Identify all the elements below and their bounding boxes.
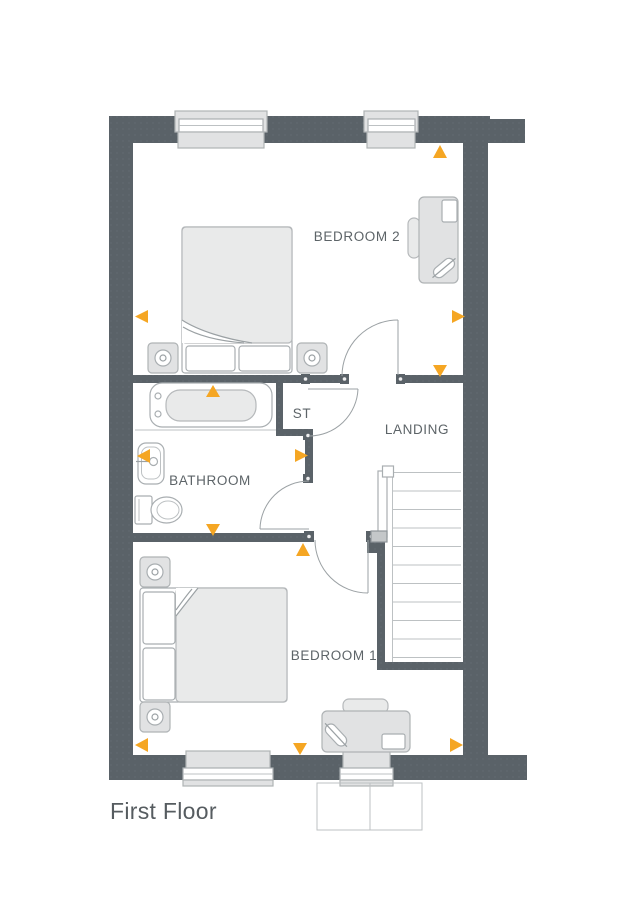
bedroom-1-bedside-table-bottom (140, 702, 170, 732)
door-jambs (301, 374, 405, 542)
window-top-right (364, 111, 418, 148)
marker-down (293, 743, 307, 755)
window-bottom-right (340, 751, 393, 786)
bedroom-2-desk (408, 197, 459, 283)
marker-left (135, 310, 148, 323)
bedroom-2-bed (182, 227, 292, 373)
room-label-landing: LANDING (385, 422, 449, 437)
window-top-left (175, 111, 267, 148)
lower-structure-outline (317, 783, 422, 830)
bedroom-1-bedside-table-top (140, 557, 170, 587)
room-label-bedroom-1: BEDROOM 1 (291, 648, 377, 663)
room-label-storage: ST (293, 406, 311, 421)
floor-title: First Floor (110, 798, 217, 825)
floorplan-drawing: BEDROOM 2 ST LANDING BATHROOM BEDROOM 1 (0, 0, 636, 900)
bedroom-2-bedside-table-left (148, 343, 178, 373)
bedroom-2-bedside-table-right (297, 343, 327, 373)
marker-left (135, 738, 148, 752)
marker-right (450, 738, 463, 752)
bedroom-2-door (342, 320, 398, 376)
bathroom-door (260, 481, 309, 529)
bedroom-1-desk (321, 699, 410, 752)
staircase (393, 473, 462, 663)
marker-up (296, 543, 310, 556)
bedroom-2-desk-chair (408, 218, 420, 258)
room-label-bathroom: BATHROOM (169, 473, 251, 488)
window-bottom-left (183, 751, 273, 786)
stair-handrail (371, 466, 394, 542)
floorplan-page: BEDROOM 2 ST LANDING BATHROOM BEDROOM 1 … (0, 0, 636, 900)
bedroom-1-door (315, 540, 368, 593)
room-label-bedroom-2: BEDROOM 2 (314, 229, 400, 244)
storage-door (308, 389, 358, 436)
toilet (135, 496, 182, 524)
bedroom-1-bed (140, 588, 287, 702)
marker-up (433, 145, 447, 158)
